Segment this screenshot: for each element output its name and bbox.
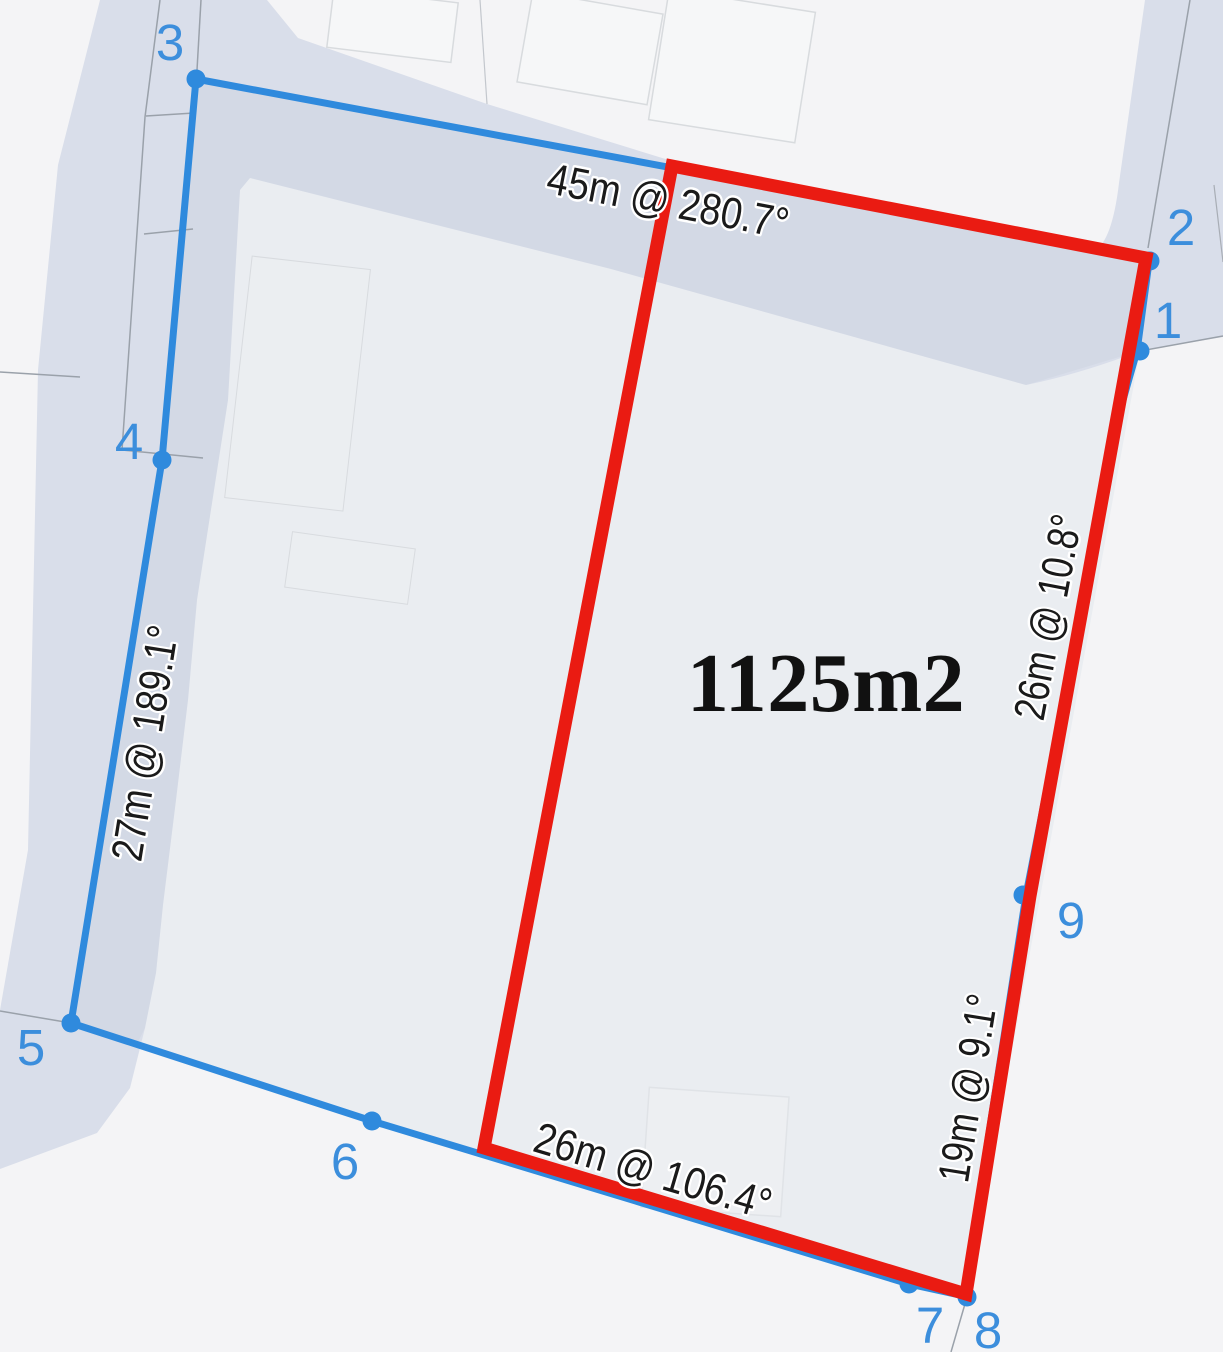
svg-text:5: 5 [17,1019,45,1076]
svg-text:2: 2 [1167,199,1195,256]
svg-text:8: 8 [974,1302,1002,1352]
svg-text:9: 9 [1057,892,1085,949]
svg-text:6: 6 [331,1133,359,1190]
svg-text:3: 3 [156,14,184,71]
svg-text:1: 1 [1154,292,1182,349]
svg-text:1125m2: 1125m2 [687,637,965,730]
svg-text:4: 4 [115,413,143,470]
svg-text:7: 7 [916,1297,944,1352]
